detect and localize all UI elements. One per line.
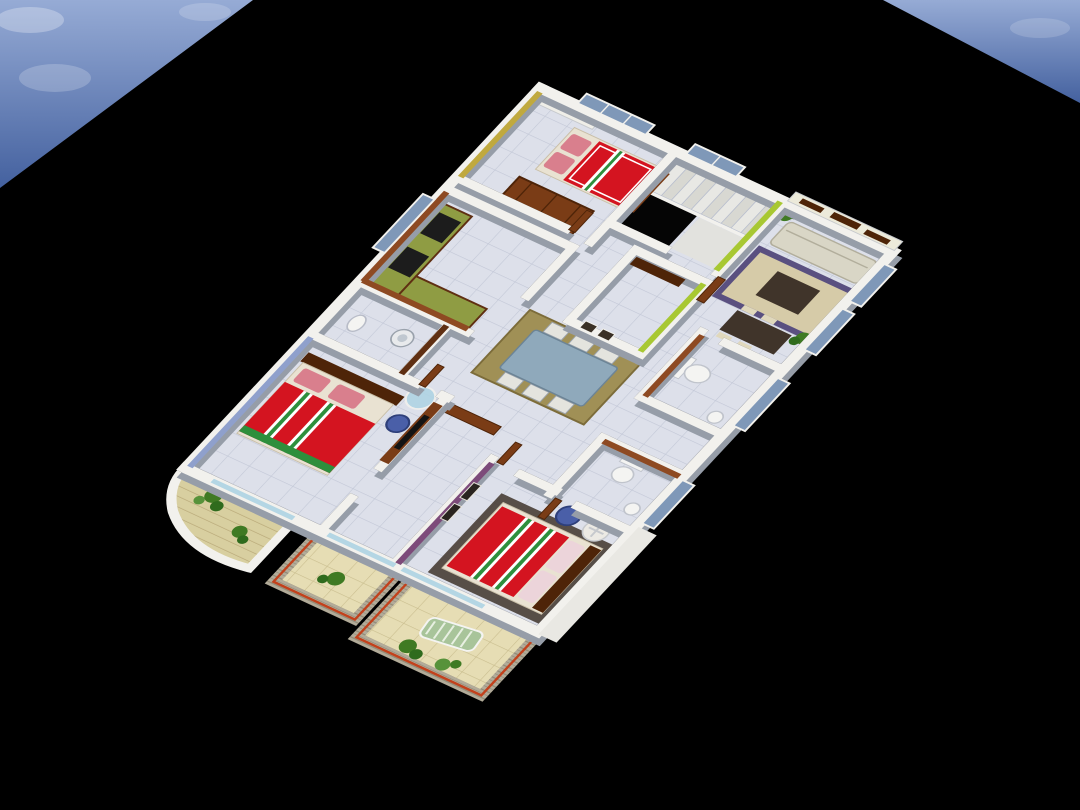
floorplan-render [0,0,1080,810]
scene-stage: { "scene": { "type": "3d-floor-plan-rend… [0,0,1080,810]
